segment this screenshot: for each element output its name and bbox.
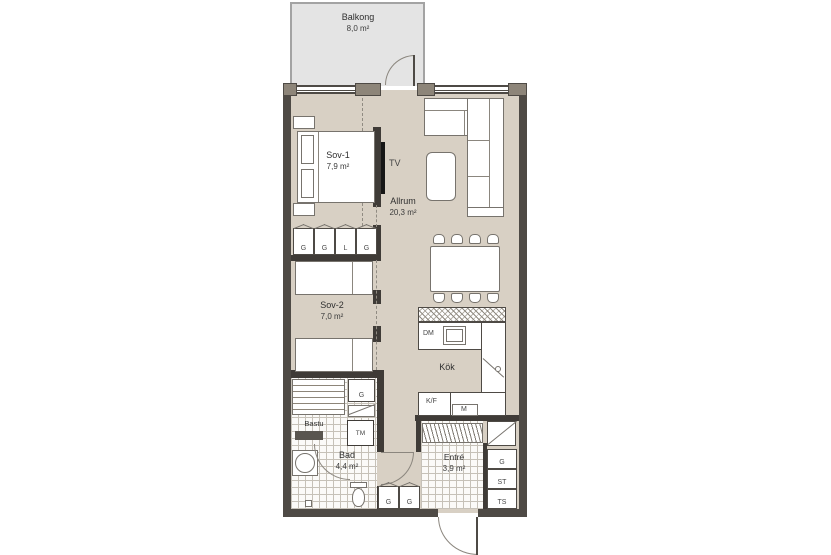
sofa-right: [467, 98, 504, 216]
allrum-size: 20,3 m²: [389, 207, 416, 218]
bed-single: [295, 261, 373, 295]
bath-closet: G: [348, 379, 375, 402]
entrance-door-leaf: [476, 517, 478, 555]
balcony-name: Balkong: [342, 12, 375, 23]
pillow: [301, 169, 314, 198]
closet-cell: ST: [487, 469, 517, 489]
shoe-cabinet: [348, 405, 375, 417]
bed-single: [295, 338, 373, 372]
dining-chair: [469, 293, 481, 303]
closet-letter: G: [301, 245, 306, 252]
sov2-name: Sov-2: [320, 300, 344, 311]
balcony-door-leaf: [413, 55, 415, 86]
counter-knob: [495, 366, 501, 372]
floor-plan: Balkong 8,0 m² Sov-1 7,9 m² TV: [0, 0, 831, 555]
closet-cell: TS: [487, 489, 517, 509]
washing-machine-box: TM: [347, 420, 374, 446]
wall-pier-top-right: [508, 83, 527, 96]
entre-label: Entré 3,9 m²: [443, 452, 466, 474]
closet-cell: G: [314, 228, 335, 255]
dining-chair: [469, 234, 481, 244]
kitchen-peninsula: [418, 307, 506, 322]
closet-letter: ST: [498, 479, 507, 486]
wall-right: [519, 85, 527, 517]
toilet: [352, 488, 365, 507]
kok-label: Kök: [439, 362, 455, 373]
dining-chair: [451, 293, 463, 303]
closet-letter: G: [499, 459, 504, 466]
sov1-size: 7,9 m²: [326, 161, 350, 172]
sliding-door-gap: [376, 205, 377, 227]
floor-drain: [305, 500, 312, 507]
nightstand: [293, 116, 315, 129]
sofa-line: [468, 176, 489, 177]
wall-pier-mid: [355, 83, 381, 96]
sliding-door-sov2: [376, 260, 377, 370]
tv-label: TV: [389, 158, 401, 168]
dining-table: [430, 246, 500, 292]
allrum-name: Allrum: [389, 196, 416, 207]
wall-bad: [377, 370, 384, 452]
closet-cell: G: [293, 228, 314, 255]
kitchen-sink-basin: [446, 329, 463, 342]
sov2-label: Sov-2 7,0 m²: [320, 300, 344, 322]
closet-cell: G: [399, 486, 420, 509]
kok-name: Kök: [439, 362, 455, 373]
allrum-label: Allrum 20,3 m²: [389, 196, 416, 218]
window-sov1: [297, 85, 355, 94]
closet-cell: G: [487, 449, 517, 469]
sauna-heater: [295, 431, 323, 440]
sofa-line: [464, 111, 465, 135]
wall-sov2-b: [373, 326, 381, 342]
dining-chair: [433, 293, 445, 303]
coat-rack: [422, 423, 483, 443]
dining-chair: [433, 234, 445, 244]
sov2-size: 7,0 m²: [320, 311, 344, 322]
closet-cell: L: [335, 228, 356, 255]
window-allrum: [435, 85, 508, 94]
closet-letter: G: [322, 245, 327, 252]
hall-closets: G G: [378, 486, 420, 509]
wall-left: [283, 85, 291, 517]
wall-bottom-left: [283, 509, 438, 517]
sofa-armrest: [467, 207, 504, 217]
dining-chair: [451, 234, 463, 244]
closet-cell: G: [356, 228, 377, 255]
pillow: [301, 135, 314, 164]
bed-line: [352, 339, 353, 371]
entre-size: 3,9 m²: [443, 463, 466, 474]
bastu-label: Bastu: [304, 418, 323, 429]
wall-sov2-a: [373, 290, 381, 304]
closet-letter: G: [386, 499, 391, 506]
closet-letter: TS: [498, 499, 507, 506]
bed-line: [352, 262, 353, 294]
entre-name: Entré: [443, 452, 466, 463]
dishwasher-label: DM: [423, 330, 434, 337]
closet-letter: L: [344, 245, 348, 252]
bed-line: [318, 132, 319, 202]
nightstand: [293, 203, 315, 216]
wall-bottom-right: [478, 509, 527, 517]
sauna-bench: [292, 379, 345, 415]
balcony-label: Balkong 8,0 m²: [342, 12, 375, 34]
dining-chair: [487, 293, 499, 303]
dining-chair: [487, 234, 499, 244]
counter-divider: [450, 393, 451, 415]
coffee-table: [426, 152, 456, 201]
closet-letter: G: [359, 392, 364, 399]
sov1-label: Sov-1 7,9 m²: [326, 150, 350, 172]
bad-door-leaf: [381, 452, 414, 453]
fridge-freezer-label: K/F: [426, 398, 437, 405]
balcony-size: 8,0 m²: [342, 23, 375, 34]
wall-pier-top-left: [283, 83, 297, 96]
closet-row: G G L G: [293, 228, 377, 255]
entre-closets: G ST TS: [487, 449, 517, 509]
bastu-name: Bastu: [304, 418, 323, 429]
washbasin: [295, 453, 315, 473]
sov1-name: Sov-1: [326, 150, 350, 161]
entrance-door-arc: [438, 517, 478, 555]
sofa-line: [468, 140, 489, 141]
closet-cell: G: [378, 486, 399, 509]
closet-letter: G: [364, 245, 369, 252]
micro-label: M: [461, 406, 467, 413]
washing-machine-label: TM: [356, 430, 365, 437]
wall-pier-door: [417, 83, 435, 96]
sofa-line: [489, 99, 490, 215]
closet-letter: G: [407, 499, 412, 506]
tv-icon: [381, 142, 385, 194]
